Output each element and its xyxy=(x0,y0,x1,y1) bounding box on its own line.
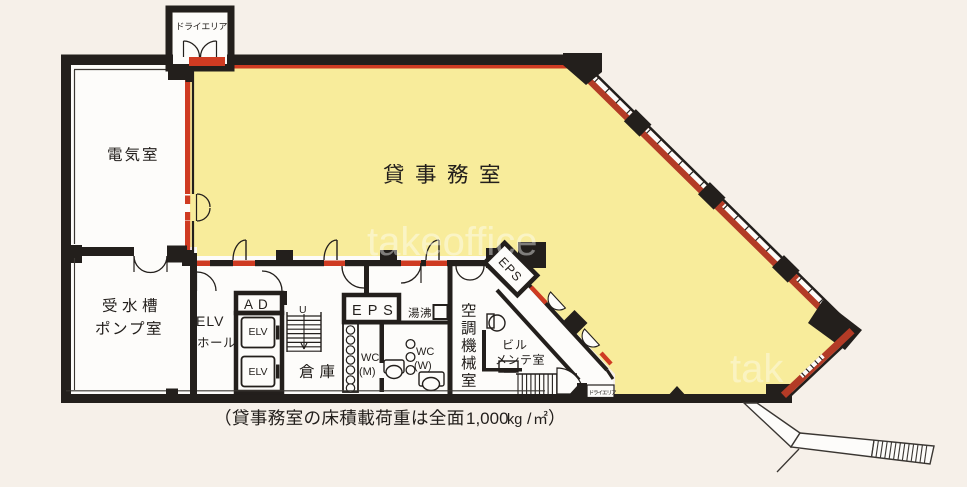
svg-text:tak: tak xyxy=(730,347,784,391)
svg-text:A D: A D xyxy=(244,297,269,312)
svg-text:WC: WC xyxy=(361,352,379,364)
svg-text:1,000: 1,000 xyxy=(466,409,509,428)
svg-text:(W): (W) xyxy=(414,360,432,372)
svg-text:/: / xyxy=(527,411,532,428)
svg-text:(M): (M) xyxy=(359,366,376,378)
svg-text:E P S: E P S xyxy=(352,303,394,319)
svg-text:takeoffice: takeoffice xyxy=(367,220,538,264)
svg-text:kg: kg xyxy=(507,412,522,428)
svg-text:ELV: ELV xyxy=(248,366,267,378)
svg-text:ELV: ELV xyxy=(248,326,267,338)
svg-text:U: U xyxy=(299,304,307,316)
svg-text:ELV: ELV xyxy=(196,313,224,329)
svg-text:WC: WC xyxy=(416,346,434,358)
